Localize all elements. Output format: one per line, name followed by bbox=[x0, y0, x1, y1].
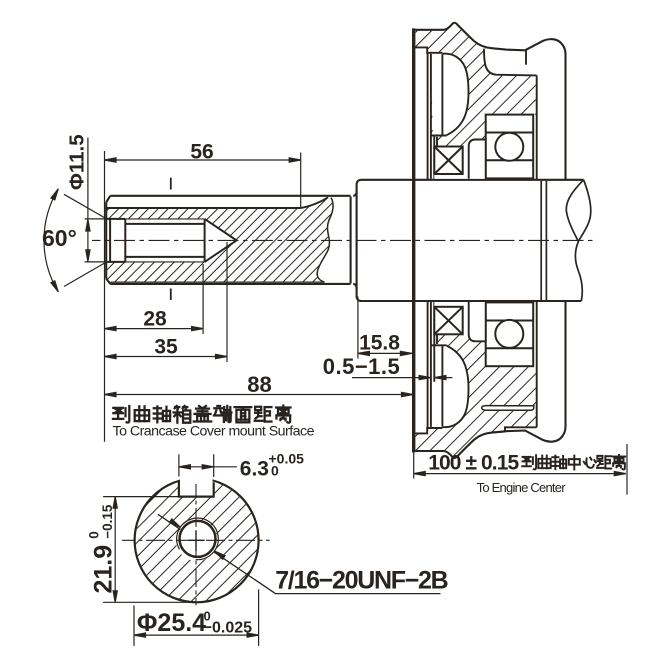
svg-text:Φ25.4: Φ25.4 bbox=[137, 609, 206, 637]
svg-text:6.3: 6.3 bbox=[240, 458, 269, 481]
svg-text:−0.025: −0.025 bbox=[203, 619, 252, 636]
svg-text:To Engine Center: To Engine Center bbox=[477, 480, 567, 495]
svg-text:0.5−1.5: 0.5−1.5 bbox=[323, 354, 401, 379]
svg-text:To Crancase Cover mount Surfac: To Crancase Cover mount Surface bbox=[113, 424, 315, 440]
svg-text:35: 35 bbox=[154, 336, 178, 359]
svg-text:−0.15: −0.15 bbox=[100, 504, 115, 539]
svg-text:56: 56 bbox=[190, 141, 213, 164]
svg-text:100 ± 0.15: 100 ± 0.15 bbox=[428, 452, 519, 475]
svg-text:21.9: 21.9 bbox=[90, 545, 118, 594]
svg-text:28: 28 bbox=[143, 308, 167, 331]
svg-text:15.8: 15.8 bbox=[359, 332, 400, 355]
svg-text:0: 0 bbox=[271, 462, 279, 478]
svg-text:Φ11.5: Φ11.5 bbox=[66, 134, 89, 190]
svg-text:88: 88 bbox=[247, 372, 271, 397]
svg-text:7/16−20UNF−2B: 7/16−20UNF−2B bbox=[275, 567, 449, 595]
svg-text:60°: 60° bbox=[42, 225, 77, 251]
